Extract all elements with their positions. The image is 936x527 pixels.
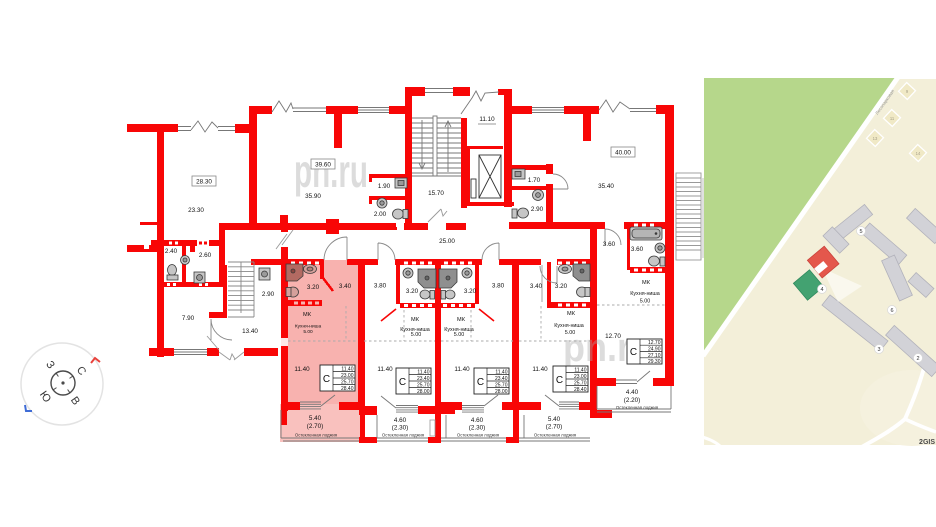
svg-text:23.40: 23.40: [495, 376, 508, 382]
svg-text:11.40: 11.40: [495, 370, 507, 376]
svg-text:13.40: 13.40: [242, 328, 258, 335]
svg-text:(2.20): (2.20): [624, 397, 640, 404]
svg-text:Остекленная лоджия: Остекленная лоджия: [616, 405, 659, 410]
svg-text:5.00: 5.00: [303, 329, 313, 335]
svg-text:МК: МК: [457, 317, 466, 323]
svg-text:24.90: 24.90: [648, 347, 661, 353]
svg-text:3.60: 3.60: [631, 246, 644, 253]
svg-text:5.00: 5.00: [565, 330, 576, 336]
svg-text:МК: МК: [642, 280, 651, 286]
svg-text:3.20: 3.20: [464, 288, 477, 295]
svg-text:4.40: 4.40: [626, 389, 639, 396]
svg-text:МК: МК: [303, 312, 312, 318]
svg-text:25.00: 25.00: [439, 238, 455, 245]
svg-text:23.30: 23.30: [188, 207, 204, 214]
svg-text:14: 14: [916, 151, 921, 156]
svg-text:28.00: 28.00: [417, 389, 430, 395]
svg-text:Кухня-ниша: Кухня-ниша: [630, 291, 660, 297]
svg-text:4.60: 4.60: [394, 417, 407, 424]
svg-text:11: 11: [890, 116, 895, 121]
svg-text:23.40: 23.40: [417, 376, 430, 382]
svg-text:2GIS: 2GIS: [919, 439, 935, 446]
svg-text:11.40: 11.40: [294, 366, 310, 373]
svg-text:(2.30): (2.30): [469, 425, 485, 432]
svg-text:С: С: [477, 377, 484, 388]
svg-text:С: С: [399, 377, 406, 388]
svg-text:Кухня-ниша: Кухня-ниша: [554, 323, 584, 329]
svg-text:11.40: 11.40: [377, 366, 393, 373]
svg-text:2.60: 2.60: [199, 252, 212, 259]
svg-text:28.40: 28.40: [574, 387, 587, 393]
svg-text:39.60: 39.60: [315, 162, 331, 169]
svg-text:12.70: 12.70: [605, 333, 621, 340]
svg-text:15.70: 15.70: [428, 190, 444, 197]
svg-text:6: 6: [890, 308, 893, 314]
svg-text:28.40: 28.40: [341, 386, 354, 392]
svg-text:4.60: 4.60: [471, 417, 484, 424]
svg-text:23.00: 23.00: [341, 373, 354, 379]
svg-text:Остекленная лоджия: Остекленная лоджия: [295, 433, 338, 438]
svg-text:pn.ru: pn.ru: [294, 145, 368, 197]
svg-text:2.40: 2.40: [165, 248, 178, 255]
svg-text:25.70: 25.70: [495, 383, 508, 389]
svg-text:С: С: [323, 374, 330, 385]
svg-text:12.70: 12.70: [648, 340, 661, 346]
svg-text:4: 4: [820, 287, 823, 293]
svg-text:11.40: 11.40: [454, 366, 470, 373]
svg-text:1.90: 1.90: [378, 183, 391, 190]
svg-text:13: 13: [873, 136, 878, 141]
svg-text:11.40: 11.40: [341, 367, 353, 373]
svg-text:(2.70): (2.70): [546, 424, 562, 431]
svg-text:3.80: 3.80: [374, 283, 387, 290]
svg-text:5.00: 5.00: [411, 332, 422, 338]
svg-text:2: 2: [916, 356, 919, 362]
svg-text:3: 3: [877, 347, 880, 353]
svg-text:2.90: 2.90: [262, 291, 275, 298]
svg-text:3.20: 3.20: [406, 288, 419, 295]
svg-text:(2.30): (2.30): [392, 425, 408, 432]
svg-text:25.70: 25.70: [574, 381, 587, 387]
svg-text:5.40: 5.40: [309, 415, 322, 422]
svg-text:25.70: 25.70: [341, 380, 354, 386]
svg-text:МК: МК: [567, 311, 576, 317]
svg-text:3.80: 3.80: [492, 283, 505, 290]
svg-text:11.40: 11.40: [532, 366, 548, 373]
svg-text:5: 5: [859, 229, 862, 235]
svg-text:11.10: 11.10: [479, 116, 495, 123]
svg-text:С: С: [556, 375, 563, 386]
svg-text:27.10: 27.10: [648, 353, 661, 359]
svg-text:С: С: [630, 347, 637, 358]
svg-text:Остекленная лоджия: Остекленная лоджия: [457, 433, 500, 438]
svg-text:(2.70): (2.70): [307, 423, 323, 430]
svg-text:МК: МК: [411, 317, 420, 323]
svg-text:Кухня-ниша: Кухня-ниша: [295, 324, 322, 330]
svg-text:3.20: 3.20: [555, 283, 568, 290]
svg-text:3.40: 3.40: [339, 283, 352, 290]
svg-text:23.00: 23.00: [574, 374, 587, 380]
svg-text:2.00: 2.00: [374, 211, 387, 218]
svg-text:35.40: 35.40: [598, 183, 614, 190]
svg-text:3.40: 3.40: [530, 283, 543, 290]
svg-text:11.40: 11.40: [417, 370, 429, 376]
svg-text:5.00: 5.00: [640, 299, 651, 305]
svg-text:11.40: 11.40: [574, 368, 586, 374]
svg-text:Остекленная лоджия: Остекленная лоджия: [534, 433, 577, 438]
svg-text:1.70: 1.70: [528, 177, 541, 184]
svg-text:3.60: 3.60: [603, 241, 616, 248]
svg-text:28.30: 28.30: [196, 179, 212, 186]
svg-text:40.00: 40.00: [615, 150, 631, 157]
svg-text:5.00: 5.00: [454, 332, 465, 338]
svg-text:35.90: 35.90: [305, 193, 321, 200]
svg-text:7.90: 7.90: [182, 315, 195, 322]
svg-text:5.40: 5.40: [548, 416, 561, 423]
svg-text:28.00: 28.00: [495, 389, 508, 395]
svg-text:25.70: 25.70: [417, 383, 430, 389]
svg-text:3.20: 3.20: [307, 284, 320, 291]
svg-text:Остекленная лоджия: Остекленная лоджия: [382, 433, 425, 438]
svg-text:29.30: 29.30: [648, 359, 661, 365]
svg-text:2.90: 2.90: [531, 206, 544, 213]
